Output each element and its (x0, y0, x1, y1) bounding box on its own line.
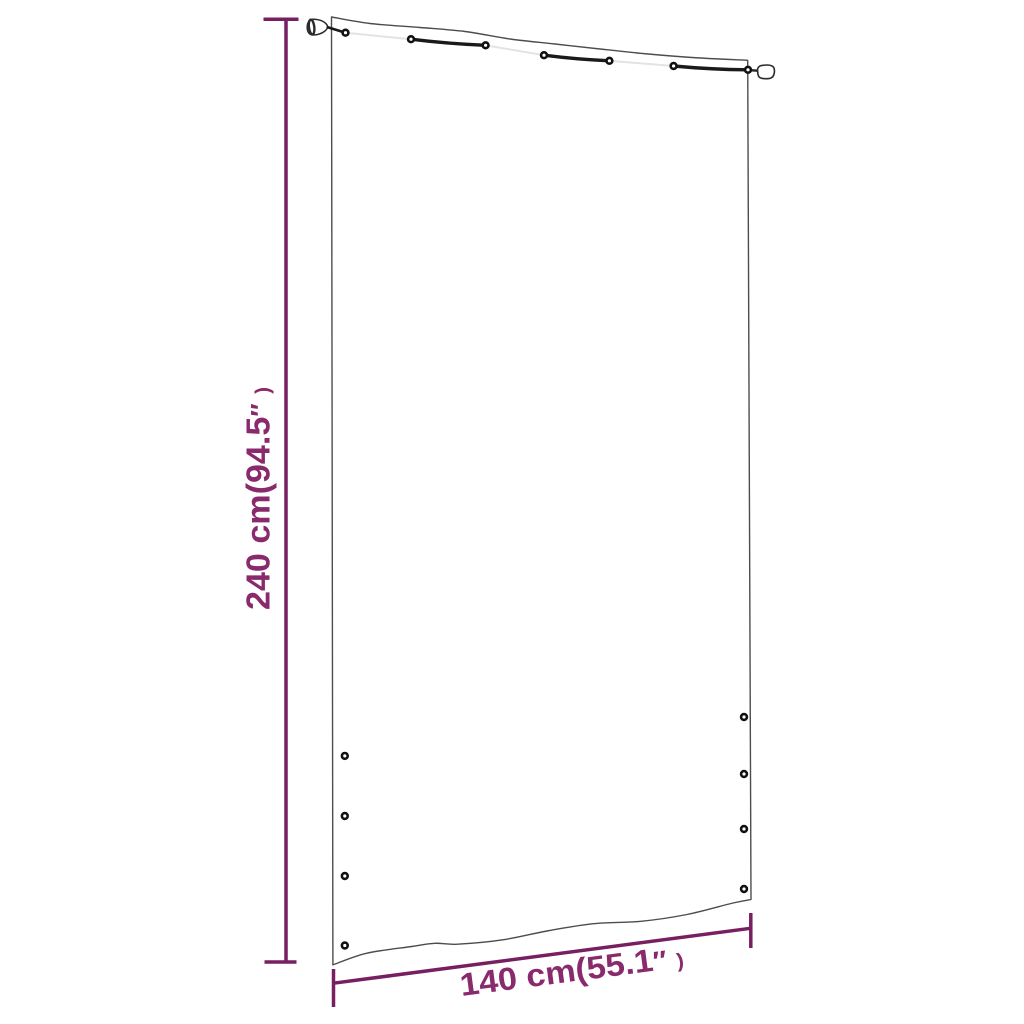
svg-text:140 cm(55.1″ ): 140 cm(55.1″ ) (458, 938, 686, 1003)
svg-text:240 cm(94.5″ ): 240 cm(94.5″ ) (240, 387, 277, 610)
